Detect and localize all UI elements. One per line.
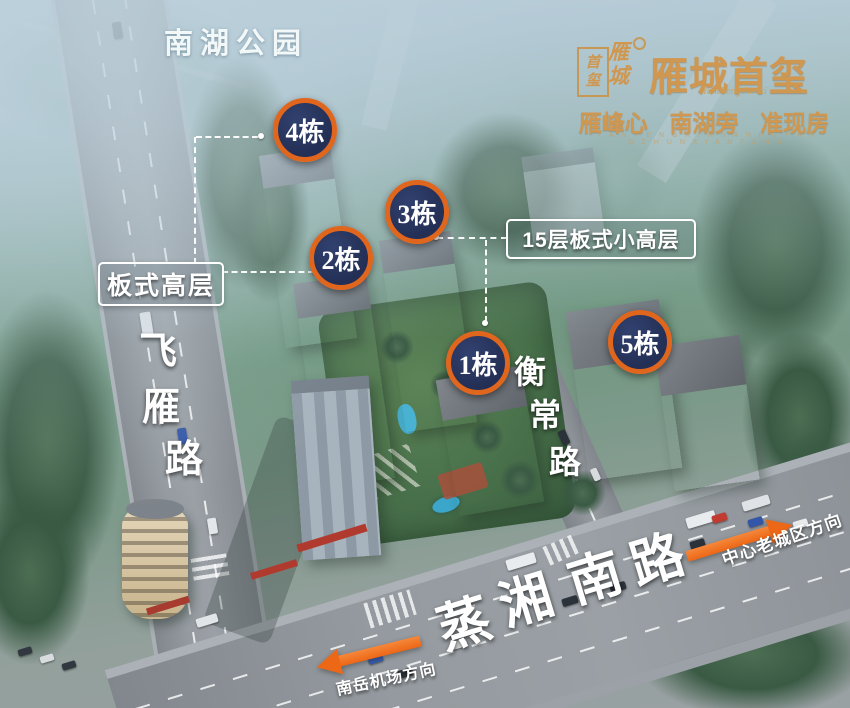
badge-building-4: 4栋 [273,98,337,162]
road-name-hengchang: 路 [549,446,581,478]
connector-line [222,271,314,273]
callout-15-floor: 15层板式小高层 [506,219,696,259]
badge-label: 2栋 [321,240,360,277]
badge-building-5: 5栋 [608,310,672,374]
seal-char: 雁 [608,41,629,65]
connector-dot [258,133,264,139]
seal-dot-icon [633,37,646,50]
road-name-hengchang: 常 [529,399,561,431]
park-label: 南湖公园 [164,20,308,62]
project-logo-script: Yanchengshouxi [652,86,817,97]
badge-building-2: 2栋 [309,226,373,290]
connector-line [437,237,507,239]
tree-cluster [0,480,90,665]
badge-building-1: 1栋 [446,331,510,395]
connector-line [194,137,196,264]
seal-box: 首 玺 [577,47,609,97]
badge-label: 3栋 [397,194,436,231]
connector-line [196,136,258,138]
seal-char: 玺 [585,72,600,90]
logo-seal-icon: 首 玺 雁 城 [577,41,641,99]
road-name-feiyan: 路 [165,441,203,479]
seal-char: 城 [608,65,629,89]
badge-label: 1栋 [458,345,497,382]
callout-banshi-gaoceng: 板式高层 [98,262,224,306]
tree-cluster [692,128,850,363]
road-name-hengchang: 衡 [514,356,546,388]
badge-building-3: 3栋 [385,180,449,244]
road-name-feiyan: 飞 [139,333,177,371]
road-name-feiyan: 雁 [142,389,180,427]
aerial-rendering: 南湖公园 首 玺 雁 城 雁城首玺 Yanchengshouxi 雁峰心 南湖旁… [0,0,850,708]
project-tagline-letters: Y A N F E N G X I N N A N H U P A N G Z … [592,132,822,146]
callout-label: 15层板式小高层 [522,224,679,254]
badge-label: 4栋 [285,112,324,149]
car [61,660,76,671]
callout-label: 板式高层 [107,266,215,302]
connector-line [485,240,487,322]
seal-side: 雁 城 [608,41,629,89]
seal-char: 首 [585,54,600,72]
far-road [361,0,425,131]
badge-label: 5栋 [620,324,659,361]
connector-dot [482,320,488,326]
